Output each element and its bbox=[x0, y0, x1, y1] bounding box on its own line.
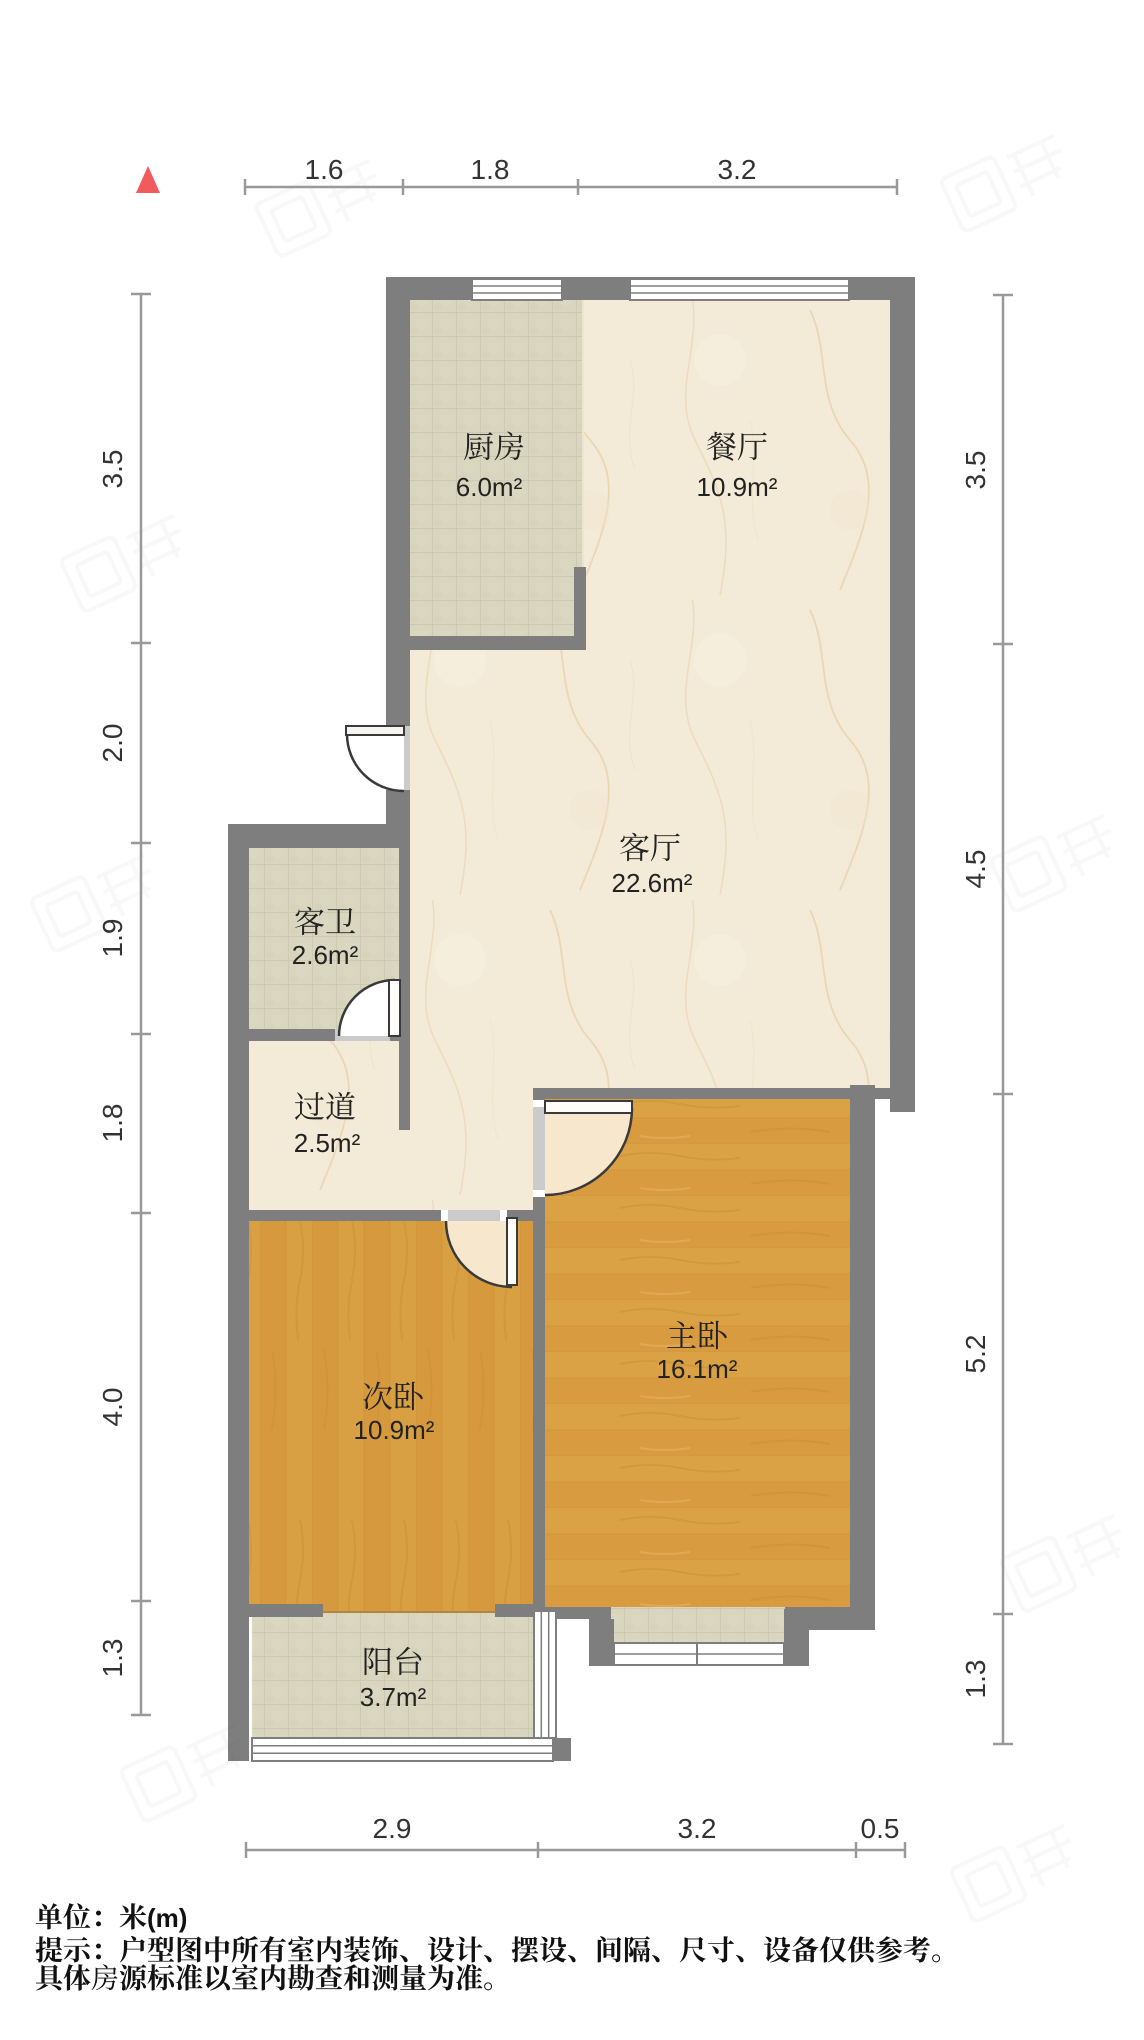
svg-text:3.7m²: 3.7m² bbox=[360, 1682, 427, 1712]
svg-text:5.2: 5.2 bbox=[960, 1335, 991, 1374]
svg-text:1.3: 1.3 bbox=[97, 1639, 128, 1678]
svg-text:(m): (m) bbox=[147, 1903, 187, 1933]
svg-text:4.0: 4.0 bbox=[97, 1388, 128, 1427]
svg-text:10.9m²: 10.9m² bbox=[354, 1415, 435, 1445]
svg-text:16.1m²: 16.1m² bbox=[657, 1354, 738, 1384]
svg-text:2.0: 2.0 bbox=[97, 724, 128, 763]
svg-text:1.3: 1.3 bbox=[960, 1660, 991, 1699]
svg-text:1.8: 1.8 bbox=[97, 1104, 128, 1143]
svg-text:3.2: 3.2 bbox=[678, 1813, 717, 1844]
svg-text:3.5: 3.5 bbox=[97, 450, 128, 489]
svg-text:2.6m²: 2.6m² bbox=[292, 940, 359, 970]
svg-text:2.5m²: 2.5m² bbox=[294, 1128, 361, 1158]
svg-text:6.0m²: 6.0m² bbox=[456, 472, 523, 502]
svg-text:10.9m²: 10.9m² bbox=[697, 472, 778, 502]
svg-text:1.9: 1.9 bbox=[97, 919, 128, 958]
svg-text:22.6m²: 22.6m² bbox=[612, 868, 693, 898]
svg-text:1.8: 1.8 bbox=[471, 154, 510, 185]
svg-text:2.9: 2.9 bbox=[373, 1813, 412, 1844]
svg-text:3.2: 3.2 bbox=[718, 154, 757, 185]
svg-text:0.5: 0.5 bbox=[861, 1813, 900, 1844]
svg-text:1.6: 1.6 bbox=[305, 154, 344, 185]
svg-text:3.5: 3.5 bbox=[960, 451, 991, 490]
svg-text:4.5: 4.5 bbox=[960, 850, 991, 889]
